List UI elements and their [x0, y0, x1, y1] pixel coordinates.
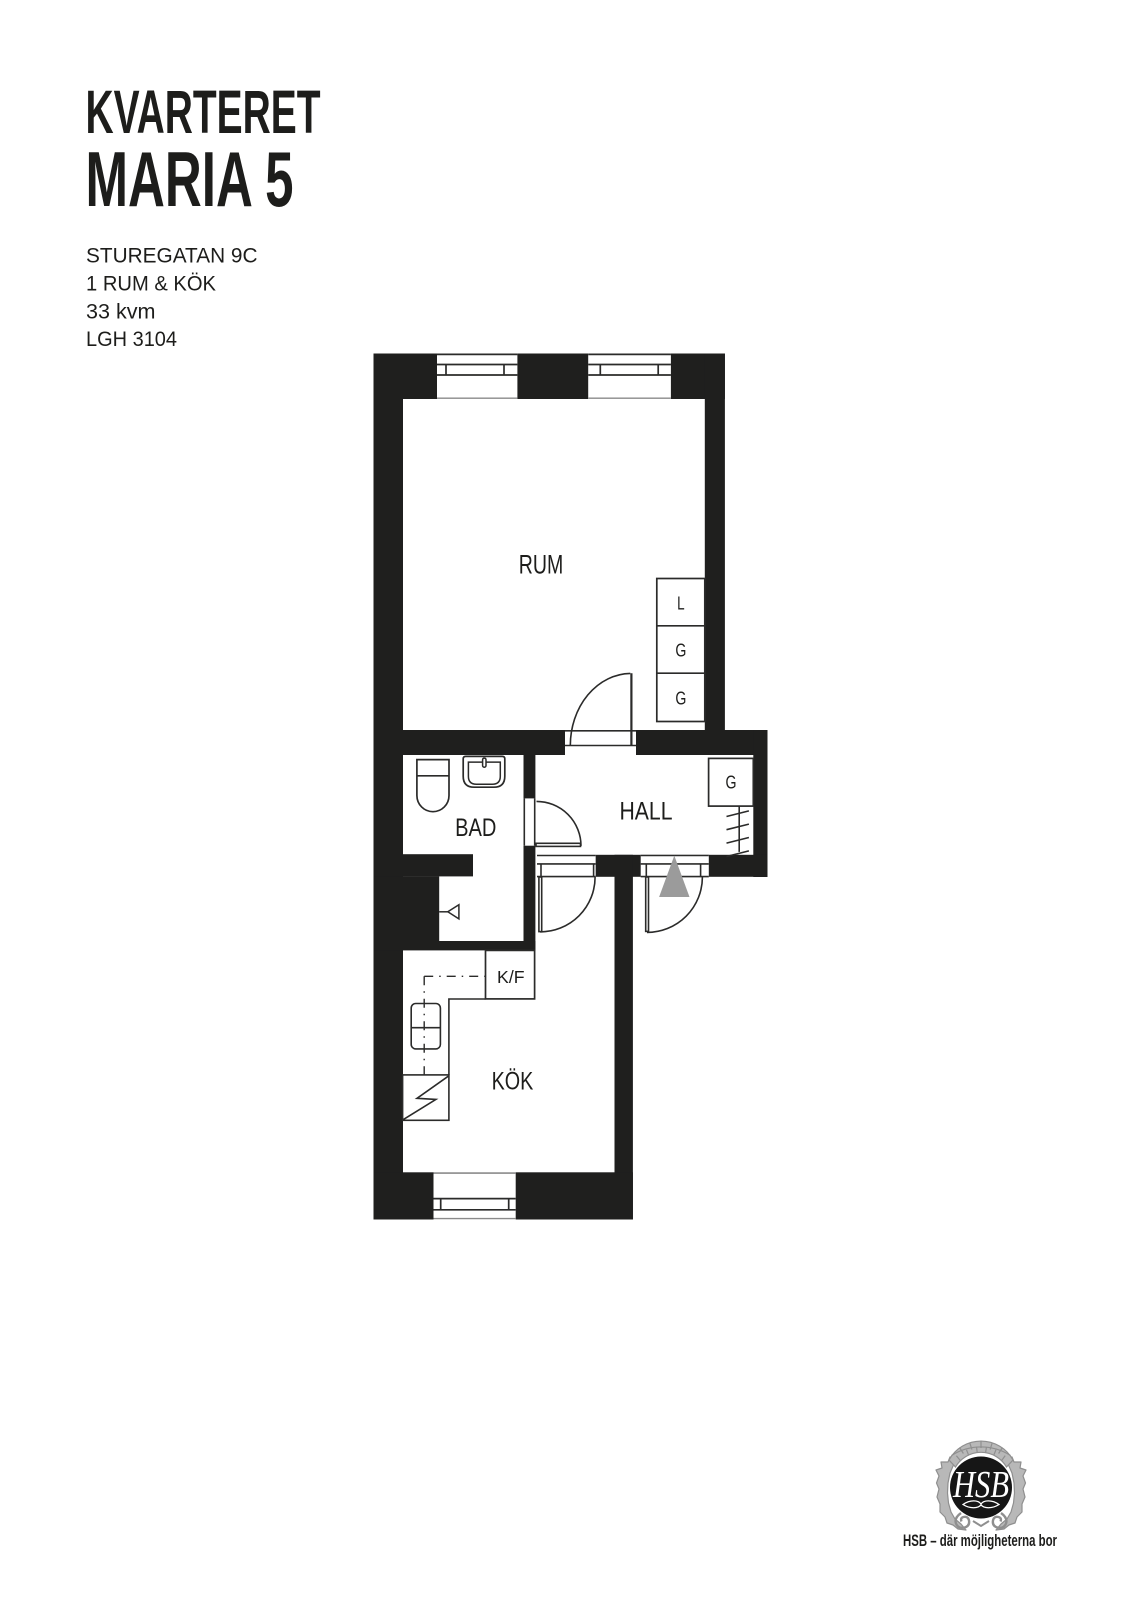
- svg-text:33 kvm: 33 kvm: [86, 300, 156, 323]
- svg-text:HALL: HALL: [620, 797, 673, 825]
- svg-text:1 RUM & KÖK: 1 RUM & KÖK: [86, 273, 216, 296]
- svg-text:G: G: [675, 641, 686, 662]
- svg-text:HSB – där möjligheterna bor: HSB – där möjligheterna bor: [903, 1532, 1057, 1550]
- svg-text:LGH 3104: LGH 3104: [86, 328, 177, 351]
- svg-text:STUREGATAN 9C: STUREGATAN 9C: [86, 244, 258, 267]
- svg-text:G: G: [675, 689, 686, 710]
- svg-text:MARIA 5: MARIA 5: [86, 135, 294, 223]
- svg-text:RUM: RUM: [519, 550, 564, 580]
- svg-text:G: G: [726, 773, 737, 794]
- svg-text:L: L: [677, 594, 685, 615]
- svg-text:BAD: BAD: [455, 814, 496, 842]
- svg-text:KÖK: KÖK: [492, 1068, 534, 1096]
- svg-text:HSB: HSB: [952, 1464, 1009, 1506]
- svg-text:K/F: K/F: [497, 967, 525, 987]
